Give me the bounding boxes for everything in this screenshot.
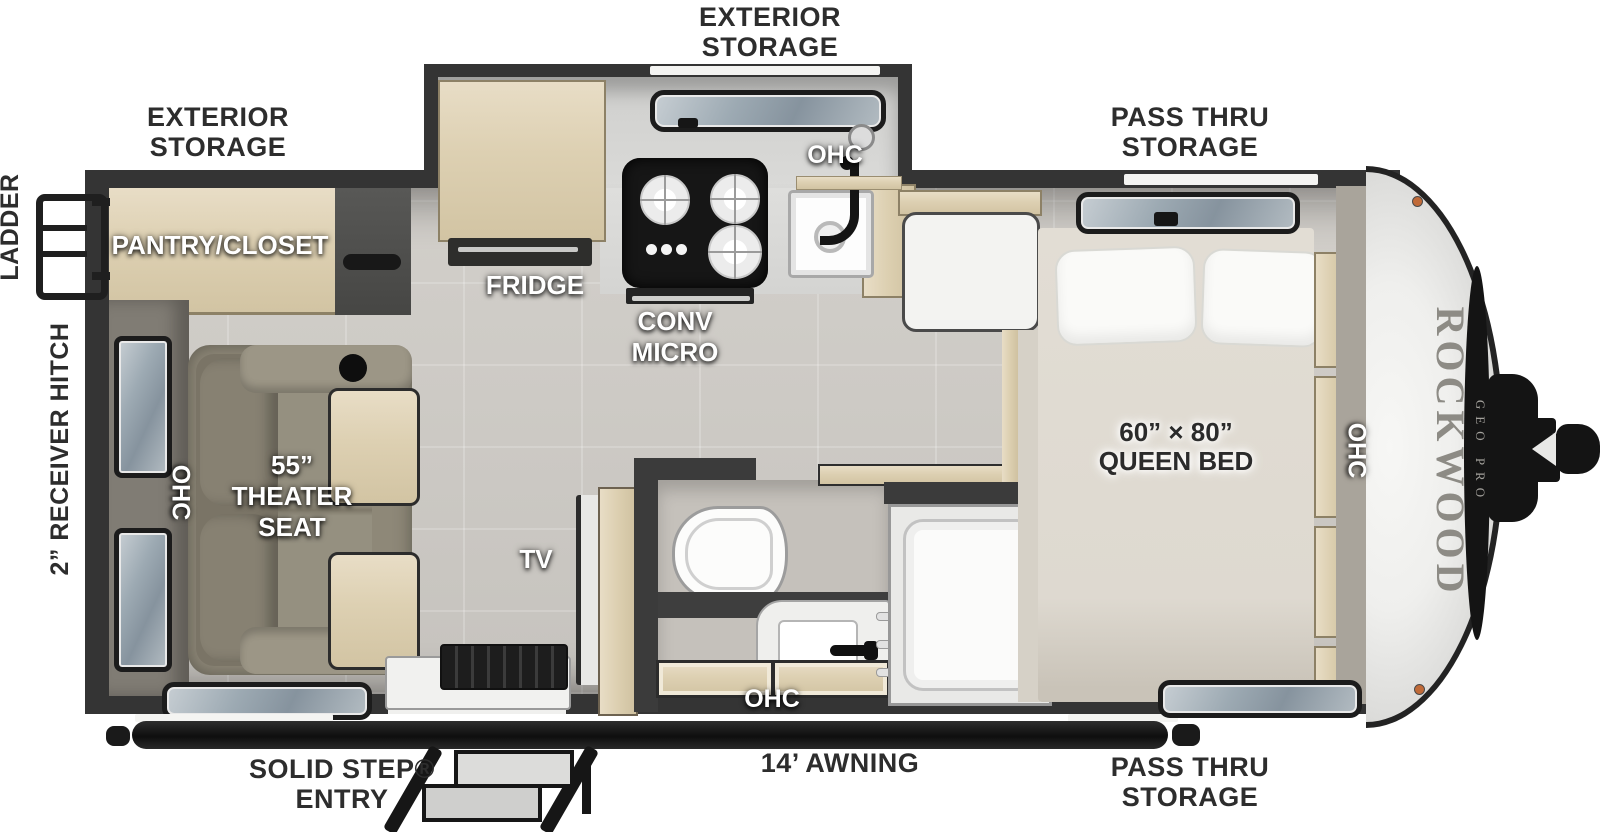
brand-sub-label: GEO PRO xyxy=(1472,400,1488,504)
cupholder-icon xyxy=(339,354,367,382)
label-tv: TV xyxy=(496,544,576,575)
label-fridge: FRIDGE xyxy=(435,270,635,301)
marker-light-icon xyxy=(1412,196,1423,207)
label-line: MICRO xyxy=(595,337,755,368)
label-ohc-bed: OHC xyxy=(1341,399,1372,503)
ladder-rung-icon xyxy=(43,225,87,231)
burner-icon xyxy=(710,174,760,224)
label-line: QUEEN BED xyxy=(1056,447,1296,476)
marker-light-icon xyxy=(1414,684,1425,695)
seat-tray-table-bottom xyxy=(328,552,420,670)
awning-roller-endcap xyxy=(106,726,130,746)
label-queen-bed: 60” × 80” QUEEN BED xyxy=(1056,418,1296,476)
burner-icon xyxy=(640,175,690,225)
bedroom-divider xyxy=(1002,330,1018,482)
wall-top-left xyxy=(85,170,438,188)
fridge-handle xyxy=(458,247,578,252)
label-conv-micro: CONV MICRO xyxy=(595,306,755,368)
ladder-rung-icon xyxy=(43,251,87,257)
burner-icon xyxy=(708,225,762,279)
window-vent-icon xyxy=(1154,212,1178,226)
label-line: STORAGE xyxy=(640,32,900,62)
bedroom-floor xyxy=(1018,330,1040,702)
wardrobe xyxy=(902,212,1040,332)
label-exterior-storage-slide: EXTERIOR STORAGE xyxy=(640,2,900,62)
step-post-icon xyxy=(582,754,591,814)
stove-knob-icon xyxy=(661,244,672,255)
slideout-wall-left xyxy=(424,64,438,188)
awning-bracket xyxy=(1172,724,1200,746)
ladder-mount-icon xyxy=(92,272,110,280)
window-latch-icon xyxy=(678,118,698,128)
stove-knob-icon xyxy=(676,244,687,255)
label-ohc-bath: OHC xyxy=(722,684,822,715)
rear-window-lower xyxy=(114,528,172,672)
tongue-jack xyxy=(1556,424,1600,474)
brand-name-label: ROCKWOOD xyxy=(1428,306,1472,597)
brand-logo: GEO PRO ROCKWOOD xyxy=(1420,280,1496,624)
label-receiver-hitch: 2” RECEIVER HITCH xyxy=(45,309,75,589)
cabinet-handle-icon xyxy=(343,254,401,270)
label-solid-step-entry: SOLID STEP® ENTRY xyxy=(222,754,462,814)
cooktop xyxy=(622,158,768,288)
pillow xyxy=(1200,248,1325,348)
tv-partition xyxy=(598,487,638,716)
label-line: THEATER xyxy=(197,481,387,512)
label-exterior-storage-rear: EXTERIOR STORAGE xyxy=(88,102,348,162)
label-theater-seat: 55” THEATER SEAT xyxy=(197,450,387,543)
label-ohc-kitchen: OHC xyxy=(790,140,880,171)
fridge-cabinet xyxy=(438,80,606,242)
awning-roller xyxy=(132,721,1168,749)
label-line: SOLID STEP® xyxy=(222,754,462,784)
label-line: 55” xyxy=(197,450,387,481)
label-line: PASS THRU xyxy=(1060,752,1320,782)
label-line: EXTERIOR xyxy=(640,2,900,32)
label-pantry-closet: PANTRY/CLOSET xyxy=(105,230,335,261)
bedroom-window-top xyxy=(1076,192,1300,234)
microwave-handle xyxy=(632,296,750,301)
hitch-coupler-bottom xyxy=(1524,464,1560,482)
step-tread xyxy=(454,750,574,788)
label-line: PASS THRU xyxy=(1060,102,1320,132)
slideout-baggage-door xyxy=(650,66,880,75)
passthru-baggage-door xyxy=(1124,174,1318,185)
seat-armrest-top xyxy=(240,345,412,393)
label-line: STORAGE xyxy=(1060,782,1320,812)
rear-window-upper xyxy=(114,336,172,478)
label-line: STORAGE xyxy=(88,132,348,162)
ladder-mount-icon xyxy=(92,198,110,206)
kitchen-ohc-ledge xyxy=(796,176,902,190)
label-line: CONV xyxy=(595,306,755,337)
hitch-coupler-top xyxy=(1524,418,1556,434)
kitchen-faucet-icon xyxy=(820,162,859,245)
ladder-icon xyxy=(36,194,108,300)
pillow xyxy=(1054,246,1197,347)
label-ladder: LADDER xyxy=(0,157,25,297)
toilet xyxy=(672,506,788,602)
bedroom-window-bottom xyxy=(1158,680,1362,718)
floorplan-canvas: GEO PRO ROCKWOOD EXTERIOR STORAGE EXTERI… xyxy=(0,0,1600,832)
label-pass-thru-bottom: PASS THRU STORAGE xyxy=(1060,752,1320,812)
bathroom-wall-top xyxy=(634,458,756,480)
label-line: SEAT xyxy=(197,512,387,543)
label-line: EXTERIOR xyxy=(88,102,348,132)
shower-basin xyxy=(903,519,1037,691)
label-pass-thru-top: PASS THRU STORAGE xyxy=(1060,102,1320,162)
label-line: 60” × 80” xyxy=(1056,418,1296,447)
fridge-front xyxy=(448,238,592,266)
label-line: ENTRY xyxy=(222,784,462,814)
stove-knob-icon xyxy=(646,244,657,255)
bathroom-wall-left xyxy=(634,458,658,712)
label-ohc-rear: OHC xyxy=(165,438,196,548)
label-awning: 14’ AWNING xyxy=(700,748,980,778)
label-line: STORAGE xyxy=(1060,132,1320,162)
entry-step-unit xyxy=(440,644,568,690)
slideout-wall-right xyxy=(898,64,912,188)
pantry-side-cabinet xyxy=(335,188,411,315)
